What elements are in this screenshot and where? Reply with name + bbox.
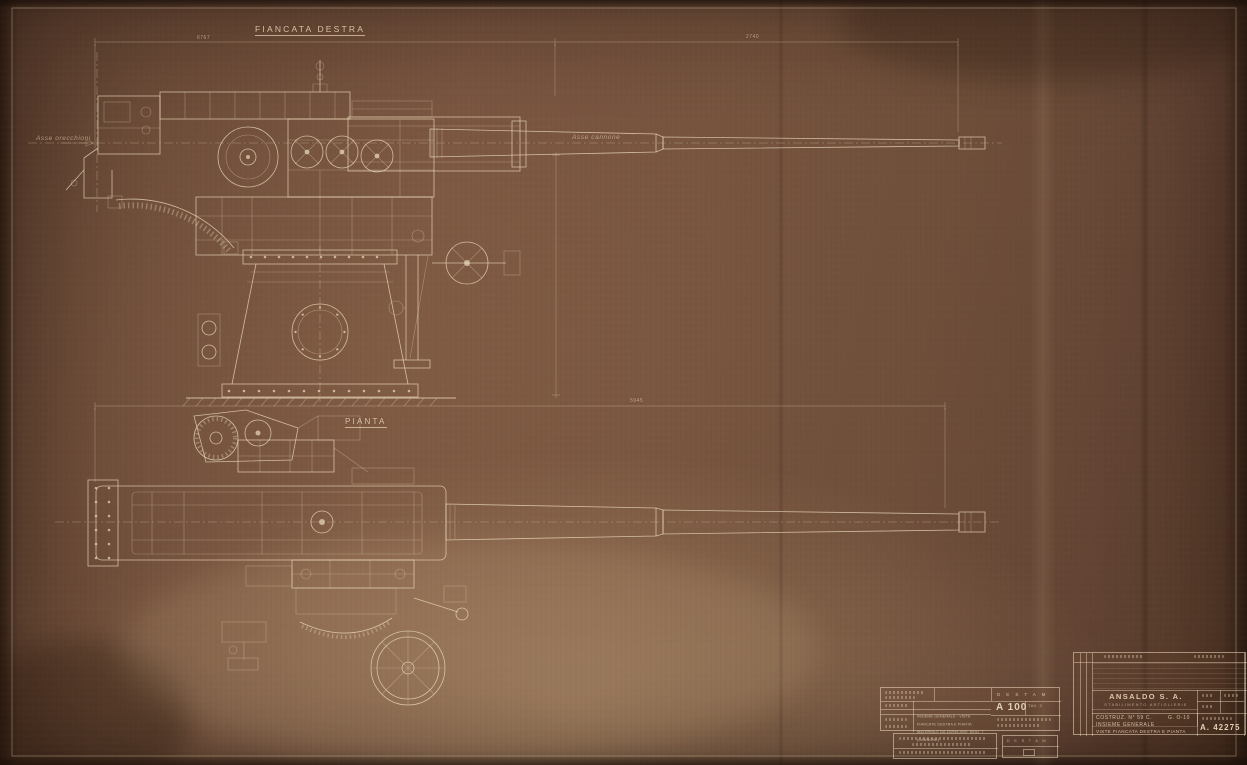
title-block: ANSALDO S. A. STABILIMENTO ARTIGLIERIE C…	[1073, 652, 1246, 735]
stamp-cell	[1023, 749, 1035, 756]
stamp-register-number: A 100	[996, 702, 1027, 713]
sheet-frame	[12, 8, 1236, 756]
agency-stamp: D E S T A M	[1002, 735, 1058, 758]
axis-trunnions-label: Asse orecchioni	[36, 135, 91, 142]
scale-entry	[1202, 694, 1214, 697]
side-view	[28, 52, 1002, 406]
registry-stamp-block: D E S T A M A 100 TAV. 3 INSIEME GENERAL…	[880, 687, 1060, 731]
dimension-top-left: 6767	[197, 35, 210, 41]
subject-line2: VISTE FIANCATA DESTRA E PIANTA	[1096, 729, 1186, 734]
stamp-date	[885, 718, 907, 721]
technical-drawing	[0, 0, 1247, 765]
training-handwheel	[432, 242, 520, 284]
plan-view-title: PIANTA	[345, 417, 387, 428]
handwheels	[291, 136, 393, 172]
stamp-agency: D E S T A M	[997, 692, 1048, 697]
stamp-plate: TAV. 3	[1028, 703, 1042, 708]
drawing-number: A. 42275	[1200, 723, 1240, 732]
construction-number: COSTRUZ. N° 59 C.	[1096, 715, 1152, 721]
subject-line1: INSIEME GENERALE	[1096, 722, 1155, 728]
stamp-entry	[885, 725, 907, 728]
blueprint-sheet: FIANCATA DESTRA PIANTA Asse orecchioni A…	[0, 0, 1247, 765]
dimension-top-right: 2740	[746, 34, 759, 40]
stamp-desc-line1: INSIEME GENERALE - VISTE	[917, 715, 971, 719]
number-note	[1202, 717, 1232, 720]
mount-body-plan	[88, 480, 446, 566]
order-code: G. O-10	[1168, 715, 1190, 721]
elevating-arc	[108, 196, 238, 254]
handwritten-note	[1104, 655, 1144, 658]
date-entry	[1224, 694, 1238, 697]
breech-mechanism	[66, 60, 520, 368]
stamp-desc-line2: FIANCATE DESTRA E PIANTA	[917, 723, 972, 727]
axis-gun-label: Asse cannone	[572, 134, 620, 141]
handwritten-note	[1194, 655, 1224, 658]
stamp-entry	[997, 724, 1041, 727]
signature-entry	[1202, 705, 1214, 708]
stamp-entry	[885, 691, 925, 694]
dimension-plan-overall: 5945	[630, 398, 643, 404]
elevating-gear-plan	[222, 560, 468, 670]
company-name: ANSALDO S. A.	[1096, 692, 1196, 701]
side-view-title: FIANCATA DESTRA	[255, 24, 365, 36]
revision-rules	[1093, 663, 1247, 690]
sight-column	[313, 60, 327, 92]
plan-view	[55, 410, 1002, 705]
dimension-lines	[95, 38, 958, 508]
company-division: STABILIMENTO ARTIGLIERIE	[1096, 702, 1196, 707]
stamp-entry	[885, 704, 909, 707]
plan-handwheel	[371, 631, 445, 705]
stamp-entry	[885, 696, 915, 699]
stamp-entry	[997, 718, 1051, 721]
agency-stamp-label: D E S T A M	[1007, 739, 1047, 743]
approval-stamp	[893, 733, 997, 759]
